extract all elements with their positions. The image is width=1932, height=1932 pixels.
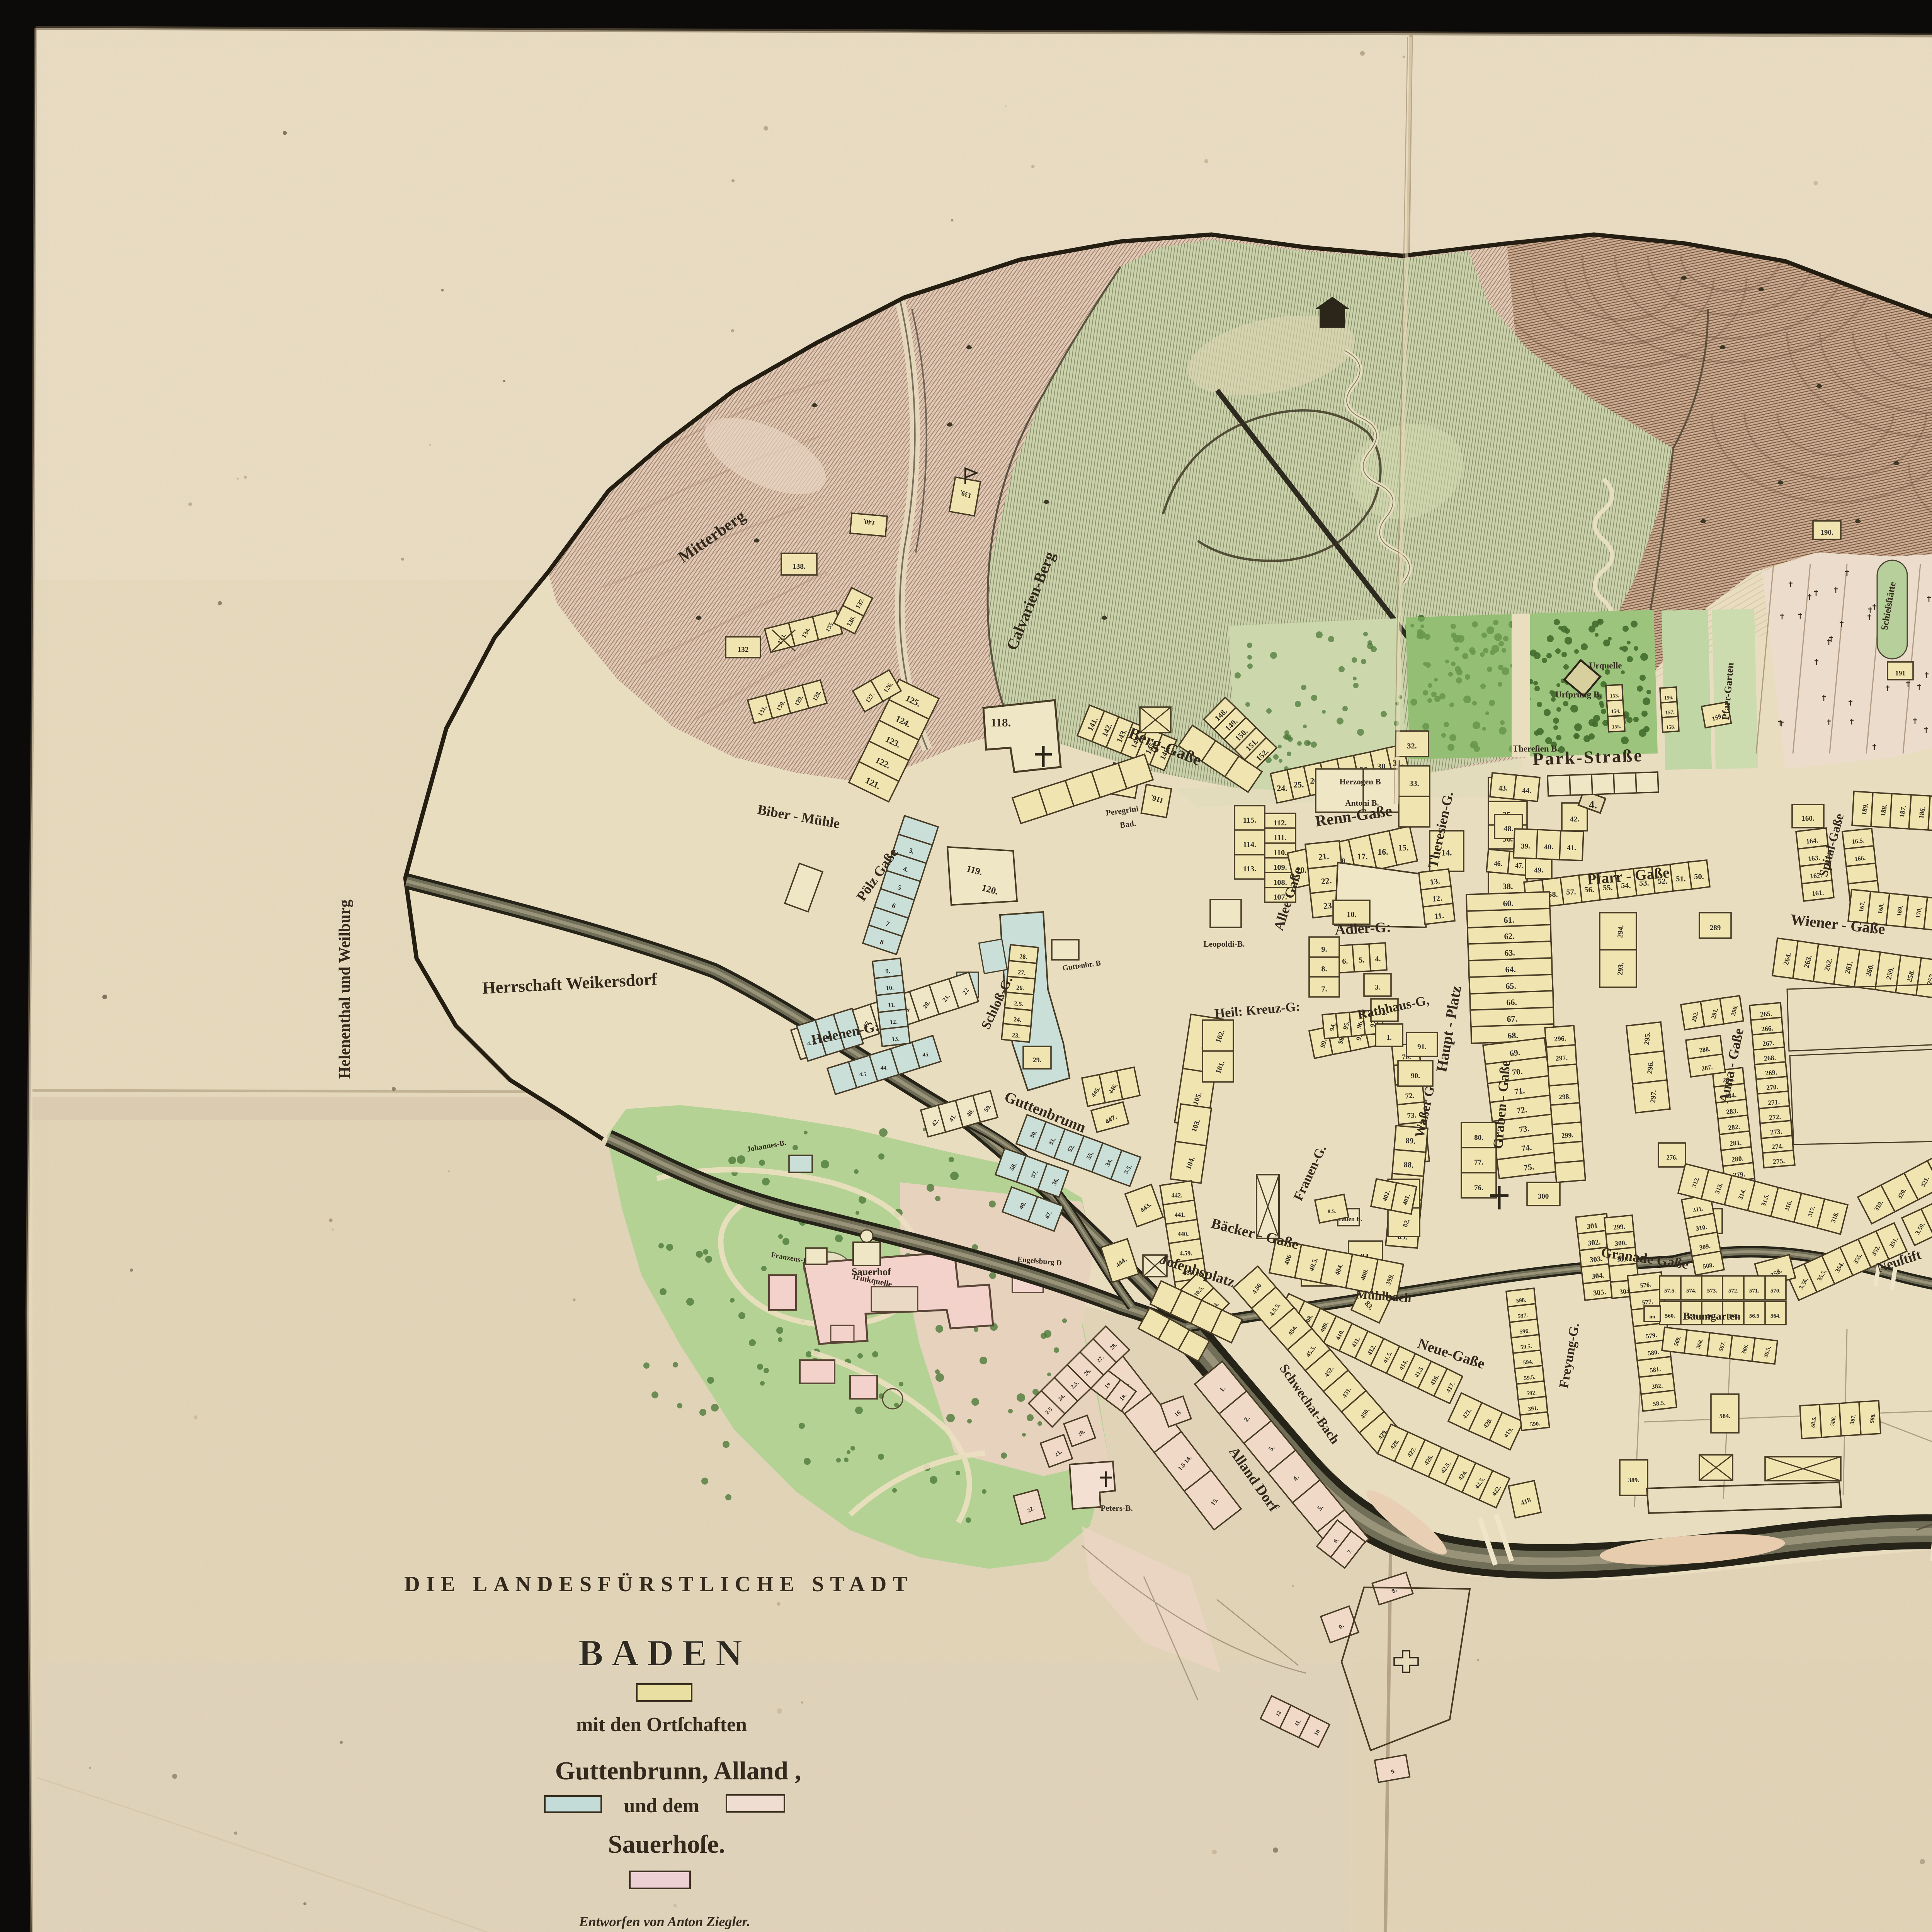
svg-text:289: 289 bbox=[1710, 924, 1721, 932]
svg-text:163.: 163. bbox=[1808, 854, 1820, 862]
svg-text:8.5.: 8.5. bbox=[1328, 1209, 1337, 1215]
svg-text:73.: 73. bbox=[1407, 1111, 1417, 1120]
svg-text:74.: 74. bbox=[1521, 1143, 1532, 1153]
svg-text:114.: 114. bbox=[1243, 840, 1257, 849]
svg-text:10.: 10. bbox=[1347, 910, 1357, 919]
svg-text:71.: 71. bbox=[1514, 1086, 1526, 1096]
svg-text:41.: 41. bbox=[1567, 844, 1576, 852]
svg-text:442.: 442. bbox=[1172, 1192, 1183, 1199]
svg-text:293.: 293. bbox=[1616, 962, 1626, 976]
svg-text:268.: 268. bbox=[1764, 1054, 1776, 1063]
svg-text:296.: 296. bbox=[1646, 1061, 1655, 1074]
svg-text:389.: 389. bbox=[1628, 1476, 1639, 1484]
svg-text:155.: 155. bbox=[1612, 723, 1621, 730]
svg-text:283.: 283. bbox=[1726, 1107, 1738, 1116]
svg-text:440.: 440. bbox=[1178, 1230, 1189, 1238]
svg-text:63.: 63. bbox=[1504, 948, 1515, 958]
svg-text:191: 191 bbox=[1895, 669, 1906, 677]
svg-text:297.: 297. bbox=[1649, 1090, 1658, 1103]
svg-text:39.: 39. bbox=[1521, 842, 1530, 850]
svg-text:300: 300 bbox=[1538, 1192, 1549, 1201]
svg-text:und dem: und dem bbox=[624, 1795, 699, 1817]
svg-text:4.: 4. bbox=[1589, 799, 1597, 811]
svg-text:59.5.: 59.5. bbox=[1520, 1343, 1532, 1350]
svg-text:65.: 65. bbox=[1505, 981, 1516, 991]
svg-text:Herzogen B: Herzogen B bbox=[1339, 777, 1381, 786]
svg-text:28.: 28. bbox=[1019, 952, 1027, 961]
svg-text:111.: 111. bbox=[1274, 833, 1286, 842]
svg-text:59.5.: 59.5. bbox=[1524, 1374, 1536, 1381]
svg-text:594.: 594. bbox=[1523, 1359, 1534, 1366]
svg-text:Entworfen von Anton Ziegler.: Entworfen von Anton Ziegler. bbox=[579, 1914, 750, 1929]
svg-text:5.: 5. bbox=[1359, 956, 1364, 964]
svg-text:269.: 269. bbox=[1765, 1068, 1777, 1077]
svg-text:164.: 164. bbox=[1806, 836, 1818, 845]
svg-text:4.59.: 4.59. bbox=[1180, 1250, 1192, 1257]
svg-text:27.: 27. bbox=[1017, 968, 1026, 976]
svg-text:60.: 60. bbox=[1503, 899, 1514, 908]
svg-text:9.: 9. bbox=[1321, 945, 1327, 954]
svg-text:109.: 109. bbox=[1273, 863, 1287, 872]
svg-text:154.: 154. bbox=[1611, 708, 1621, 714]
svg-text:6.: 6. bbox=[1342, 957, 1348, 966]
svg-text:16.5.: 16.5. bbox=[1851, 837, 1864, 845]
svg-text:22.: 22. bbox=[1321, 876, 1332, 886]
svg-text:Helenenthal und Weilburg: Helenenthal und Weilburg bbox=[335, 899, 353, 1079]
svg-text:Sauerhoſe.: Sauerhoſe. bbox=[608, 1830, 725, 1859]
svg-text:11.: 11. bbox=[1434, 912, 1444, 921]
svg-text:110.: 110. bbox=[1274, 849, 1287, 857]
svg-text:138.: 138. bbox=[793, 563, 805, 571]
svg-text:581.: 581. bbox=[1649, 1365, 1661, 1374]
svg-text:115.: 115. bbox=[1243, 816, 1257, 825]
svg-text:Sauerhof: Sauerhof bbox=[852, 1266, 891, 1277]
svg-text:mit den Ortſchaften: mit den Ortſchaften bbox=[576, 1714, 747, 1736]
svg-text:im: im bbox=[1649, 1314, 1655, 1320]
svg-text:47.: 47. bbox=[1515, 862, 1524, 869]
svg-text:299.: 299. bbox=[1561, 1131, 1573, 1139]
svg-text:68.: 68. bbox=[1507, 1031, 1518, 1041]
svg-text:153.: 153. bbox=[1610, 692, 1619, 699]
svg-text:40.: 40. bbox=[1544, 843, 1553, 851]
svg-text:77.: 77. bbox=[1474, 1158, 1483, 1167]
svg-text:382.: 382. bbox=[1651, 1382, 1663, 1390]
svg-text:299.: 299. bbox=[1613, 1223, 1626, 1231]
svg-text:21.: 21. bbox=[1318, 852, 1330, 862]
svg-text:76.: 76. bbox=[1474, 1184, 1483, 1192]
svg-text:67.: 67. bbox=[1507, 1014, 1517, 1024]
svg-text:23.: 23. bbox=[1012, 1031, 1020, 1039]
svg-text:296.: 296. bbox=[1554, 1034, 1566, 1043]
svg-text:49.: 49. bbox=[1534, 866, 1543, 874]
svg-text:305.: 305. bbox=[1593, 1288, 1606, 1297]
svg-text:273.: 273. bbox=[1770, 1128, 1782, 1136]
svg-text:24.: 24. bbox=[1013, 1015, 1022, 1024]
svg-text:45.: 45. bbox=[923, 1052, 930, 1058]
svg-text:44.: 44. bbox=[881, 1065, 888, 1071]
svg-text:276.: 276. bbox=[1667, 1154, 1678, 1161]
svg-text:4.5: 4.5 bbox=[859, 1071, 867, 1078]
svg-text:158.: 158. bbox=[1666, 724, 1675, 730]
svg-text:13.: 13. bbox=[891, 1035, 900, 1043]
svg-text:266.: 266. bbox=[1761, 1024, 1774, 1033]
svg-text:16.: 16. bbox=[1378, 847, 1388, 857]
svg-text:302.: 302. bbox=[1587, 1238, 1601, 1247]
svg-text:275.: 275. bbox=[1772, 1157, 1785, 1166]
svg-text:80.: 80. bbox=[1474, 1134, 1483, 1142]
svg-text:280.: 280. bbox=[1731, 1154, 1744, 1163]
svg-text:573.: 573. bbox=[1707, 1288, 1717, 1294]
svg-text:287.: 287. bbox=[1701, 1063, 1713, 1072]
svg-text:38.: 38. bbox=[1502, 882, 1513, 891]
svg-text:Urquelle: Urquelle bbox=[1589, 661, 1622, 670]
svg-text:118.: 118. bbox=[991, 716, 1011, 729]
svg-text:281.: 281. bbox=[1729, 1138, 1742, 1147]
svg-text:8.: 8. bbox=[1321, 965, 1327, 973]
svg-text:274.: 274. bbox=[1771, 1142, 1784, 1151]
svg-text:72.: 72. bbox=[1516, 1105, 1528, 1115]
svg-text:12.: 12. bbox=[889, 1018, 898, 1026]
svg-text:570.: 570. bbox=[1770, 1288, 1781, 1294]
svg-text:DIE LANDESFÜRSTLICHE STADT: DIE LANDESFÜRSTLICHE STADT bbox=[404, 1572, 913, 1596]
svg-text:190.: 190. bbox=[1820, 529, 1833, 537]
svg-text:295.: 295. bbox=[1643, 1032, 1652, 1045]
svg-text:Adler-G:: Adler-G: bbox=[1335, 919, 1391, 938]
svg-text:48.: 48. bbox=[1503, 825, 1514, 833]
svg-text:592.: 592. bbox=[1526, 1390, 1537, 1397]
svg-text:576.: 576. bbox=[1639, 1281, 1651, 1289]
svg-text:11.: 11. bbox=[888, 1001, 896, 1009]
svg-text:7.: 7. bbox=[1321, 985, 1327, 993]
svg-text:298.: 298. bbox=[1558, 1092, 1571, 1101]
svg-text:61.: 61. bbox=[1503, 915, 1514, 925]
svg-text:43.: 43. bbox=[1498, 784, 1508, 793]
svg-text:25.: 25. bbox=[1293, 780, 1304, 789]
svg-text:46.: 46. bbox=[1494, 860, 1502, 867]
svg-text:564.: 564. bbox=[1770, 1313, 1781, 1319]
svg-text:112.: 112. bbox=[1274, 819, 1287, 827]
svg-text:26.: 26. bbox=[1016, 984, 1024, 992]
svg-text:Leopoldi-B.: Leopoldi-B. bbox=[1203, 939, 1245, 949]
svg-text:29.: 29. bbox=[1033, 1056, 1041, 1064]
svg-text:282.: 282. bbox=[1728, 1122, 1740, 1131]
svg-text:50.: 50. bbox=[1694, 872, 1704, 881]
svg-text:15.: 15. bbox=[1398, 843, 1408, 852]
svg-text:1.: 1. bbox=[1386, 1034, 1391, 1041]
svg-text:297.: 297. bbox=[1555, 1054, 1568, 1062]
svg-text:166.: 166. bbox=[1854, 854, 1866, 863]
svg-text:2.5.: 2.5. bbox=[1014, 1000, 1024, 1008]
svg-text:294.: 294. bbox=[1616, 925, 1626, 938]
svg-text:156.: 156. bbox=[1664, 694, 1673, 701]
svg-text:12.: 12. bbox=[1432, 894, 1443, 903]
svg-text:577.: 577. bbox=[1641, 1298, 1653, 1306]
svg-text:161.: 161. bbox=[1811, 888, 1824, 897]
svg-text:89.: 89. bbox=[1405, 1136, 1416, 1146]
svg-text:301: 301 bbox=[1586, 1222, 1598, 1231]
svg-text:572.: 572. bbox=[1728, 1288, 1738, 1294]
svg-text:590.: 590. bbox=[1530, 1421, 1541, 1428]
svg-text:64.: 64. bbox=[1505, 965, 1516, 975]
svg-text:88.: 88. bbox=[1403, 1160, 1414, 1170]
svg-text:441.: 441. bbox=[1175, 1211, 1186, 1218]
svg-text:70.: 70. bbox=[1512, 1066, 1523, 1077]
svg-text:75.: 75. bbox=[1523, 1162, 1535, 1172]
svg-text:579.: 579. bbox=[1645, 1331, 1657, 1340]
svg-text:571.: 571. bbox=[1749, 1288, 1759, 1294]
svg-text:304.: 304. bbox=[1591, 1271, 1605, 1281]
svg-text:391.: 391. bbox=[1528, 1405, 1539, 1413]
svg-text:13.: 13. bbox=[1430, 877, 1440, 886]
svg-text:9.: 9. bbox=[885, 967, 891, 975]
svg-text:272.: 272. bbox=[1769, 1113, 1781, 1122]
svg-text:58.5.: 58.5. bbox=[1652, 1399, 1666, 1408]
svg-text:17.: 17. bbox=[1357, 852, 1367, 861]
svg-text:560.: 560. bbox=[1665, 1313, 1675, 1319]
svg-text:271.: 271. bbox=[1767, 1098, 1780, 1107]
svg-text:57.: 57. bbox=[1566, 888, 1576, 896]
svg-text:270.: 270. bbox=[1766, 1083, 1779, 1092]
svg-text:91.: 91. bbox=[1417, 1043, 1427, 1051]
svg-text:584.: 584. bbox=[1719, 1412, 1731, 1420]
svg-text:574.: 574. bbox=[1686, 1288, 1696, 1294]
svg-text:24.: 24. bbox=[1277, 784, 1287, 793]
svg-text:56.5: 56.5 bbox=[1749, 1313, 1759, 1319]
svg-text:57.5.: 57.5. bbox=[1664, 1288, 1676, 1294]
svg-text:Baumgarten: Baumgarten bbox=[1683, 1310, 1741, 1322]
svg-text:3.: 3. bbox=[1375, 983, 1380, 991]
svg-text:Thereſien B.: Thereſien B. bbox=[1513, 744, 1560, 753]
svg-text:32.: 32. bbox=[1407, 742, 1417, 750]
svg-text:Urſprung B.: Urſprung B. bbox=[1555, 690, 1602, 699]
svg-text:597.: 597. bbox=[1517, 1313, 1528, 1320]
svg-text:267.: 267. bbox=[1762, 1039, 1775, 1048]
svg-text:BADEN: BADEN bbox=[578, 1632, 751, 1673]
svg-text:Guttenbrunn, Alland ,: Guttenbrunn, Alland , bbox=[555, 1757, 801, 1785]
svg-text:90.: 90. bbox=[1411, 1072, 1420, 1080]
svg-text:160.: 160. bbox=[1801, 815, 1814, 823]
svg-text:72.: 72. bbox=[1405, 1092, 1415, 1100]
svg-text:66.: 66. bbox=[1506, 998, 1517, 1007]
svg-text:10.: 10. bbox=[886, 984, 894, 992]
svg-text:42.: 42. bbox=[1570, 815, 1579, 823]
svg-text:69.: 69. bbox=[1509, 1048, 1521, 1058]
svg-text:113.: 113. bbox=[1243, 865, 1257, 873]
svg-text:157.: 157. bbox=[1665, 709, 1675, 716]
svg-text:33.: 33. bbox=[1409, 779, 1419, 788]
svg-text:596.: 596. bbox=[1519, 1328, 1530, 1335]
svg-text:73.: 73. bbox=[1519, 1124, 1530, 1134]
svg-text:132: 132 bbox=[738, 646, 749, 654]
svg-text:4.: 4. bbox=[1375, 955, 1381, 963]
svg-text:288.: 288. bbox=[1699, 1045, 1711, 1054]
svg-text:44.: 44. bbox=[1522, 787, 1531, 795]
svg-text:Peters-B.: Peters-B. bbox=[1100, 1503, 1133, 1513]
svg-text:265.: 265. bbox=[1760, 1010, 1772, 1019]
svg-text:51.: 51. bbox=[1676, 875, 1686, 883]
svg-text:62.: 62. bbox=[1504, 932, 1515, 941]
svg-text:598.: 598. bbox=[1516, 1297, 1527, 1304]
svg-text:580.: 580. bbox=[1647, 1348, 1659, 1357]
